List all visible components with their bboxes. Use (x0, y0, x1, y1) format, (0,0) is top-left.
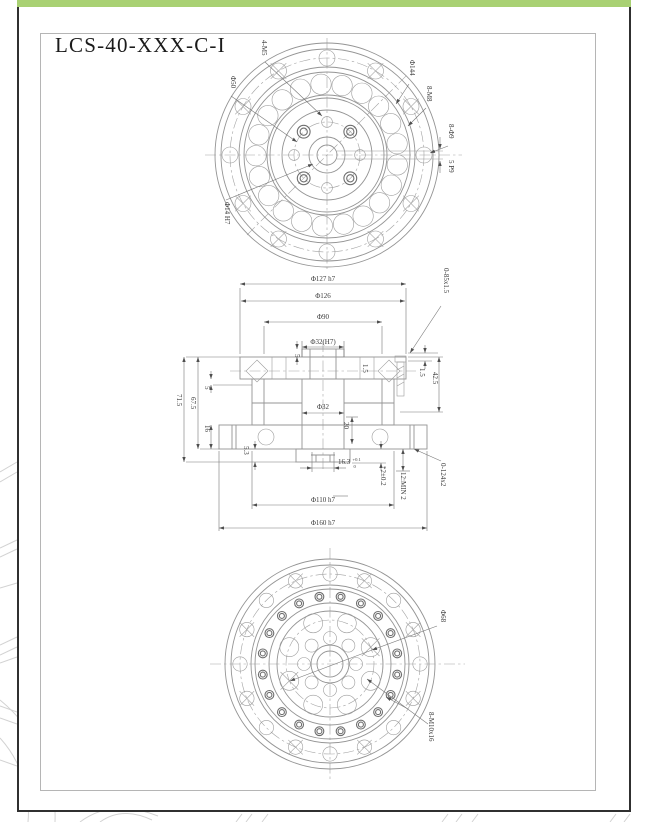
dim-163: 16.3 (338, 458, 351, 466)
dim-15-outer: 1.5 (418, 368, 426, 377)
label-8-m10x16: 8-M10x16 (427, 712, 435, 742)
dim-425: 42.5 (431, 372, 439, 385)
dim-d32: Φ32 (317, 403, 330, 411)
dim-12min2: 12:MIN 2 (399, 472, 407, 500)
dim-d160h7: Φ160 h7 (311, 519, 336, 527)
label-bore-14h7: Φ14 H7 (223, 202, 231, 225)
dim-16: 16 (203, 425, 211, 433)
dim-d127h7: Φ127 h7 (311, 275, 336, 283)
label-4-m5: 4-M5 (260, 40, 268, 56)
technical-drawing: LCS-40-XXX-C-I (0, 0, 646, 822)
dim-15-inner: 1.5 (361, 364, 369, 373)
section-view-drawing: Φ127 h7 Φ126 Φ90 Φ32(H7) 0-85x1.5 1.5 42… (175, 268, 450, 531)
label-bolt-circle-68: Φ68 (439, 610, 447, 623)
dim-53: 5.3 (242, 446, 250, 455)
dim-5-left: 5 (203, 386, 211, 390)
section-dimension-labels: Φ127 h7 Φ126 Φ90 Φ32(H7) 0-85x1.5 1.5 42… (175, 268, 450, 527)
dim-d32h7: Φ32(H7) (310, 338, 336, 346)
label-8-m8: 8-M8 (425, 86, 433, 102)
bottom-view-drawing: Φ68 8-M10x16 (210, 548, 465, 782)
label-bolt-circle-144: Φ144 (408, 60, 416, 76)
label-keyway-5p9: 5 P9 (447, 160, 455, 173)
dim-163-lower-tol: 0 (354, 464, 357, 469)
dim-20: 20 (342, 422, 350, 430)
dim-163-upper-tol: +0.1 (353, 457, 362, 462)
dim-oring-85: 0-85x1.5 (442, 268, 450, 294)
dim-5-center: 5 (293, 354, 301, 358)
dim-oring-124: 0-124x2 (439, 463, 447, 487)
top-view-drawing: 4-M5 Φ50 Φ144 8-M8 8-Φ9 5 P9 Φ14 H7 (205, 38, 462, 272)
drawing-title: LCS-40-XXX-C-I (55, 33, 226, 57)
dim-tol2: *2±0.2 (379, 466, 387, 486)
bottom-view-labels: Φ68 8-M10x16 (427, 610, 447, 742)
dim-d90: Φ90 (317, 313, 330, 321)
label-8-d9: 8-Φ9 (447, 124, 455, 139)
dim-d110h7: Φ110 h7 (311, 496, 336, 504)
bottom-view-centerlines (210, 548, 465, 782)
label-bolt-circle-50: Φ50 (229, 76, 237, 89)
top-view-leaders (226, 62, 448, 200)
dim-675: 67.5 (189, 397, 197, 410)
dim-715: 71.5 (175, 394, 183, 407)
dim-d126: Φ126 (315, 292, 331, 300)
